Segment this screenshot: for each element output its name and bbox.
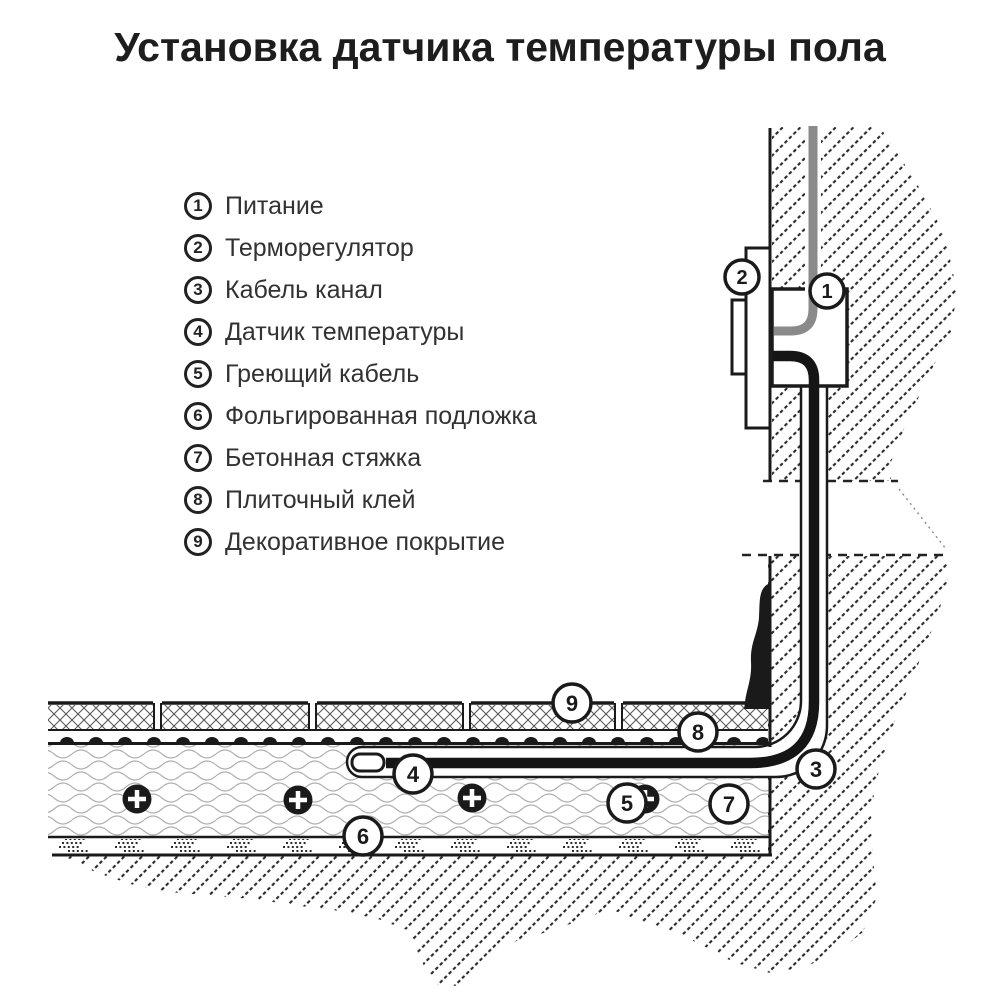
foil-underlay-layer [48,839,772,855]
callout-1: 1 [810,274,844,308]
tile-joint [153,700,162,730]
svg-text:2: 2 [736,267,747,289]
svg-text:8: 8 [692,720,704,745]
callout-5: 5 [608,784,646,822]
tile-joint [614,700,623,730]
callout-7: 7 [710,785,748,823]
svg-text:3: 3 [810,757,822,782]
svg-text:4: 4 [407,762,420,787]
svg-text:9: 9 [566,691,578,716]
installation-diagram: 1 2 3 4 5 6 7 8 9 [0,0,1000,1000]
heating-cable-cross-icon [284,786,313,815]
callout-8: 8 [679,713,717,751]
heating-cable-cross-icon [458,784,487,813]
tile-adhesive-layer [48,730,768,744]
svg-text:7: 7 [723,792,735,817]
callout-6: 6 [344,817,382,855]
tile-joint [462,700,471,730]
tile-layer [48,700,768,730]
svg-text:6: 6 [357,824,369,849]
svg-text:1: 1 [821,281,832,303]
temperature-sensor [352,754,384,771]
callout-3: 3 [797,750,835,788]
callout-4: 4 [394,755,432,793]
tile-joint [308,700,317,730]
callout-9: 9 [553,684,591,722]
callout-2: 2 [725,260,759,294]
thermostat-front-knob [732,300,746,374]
wall-break-torn-edge [899,489,946,549]
heating-cable-cross-icon [123,785,152,814]
corner-sealant [744,583,770,709]
svg-text:5: 5 [621,791,633,816]
